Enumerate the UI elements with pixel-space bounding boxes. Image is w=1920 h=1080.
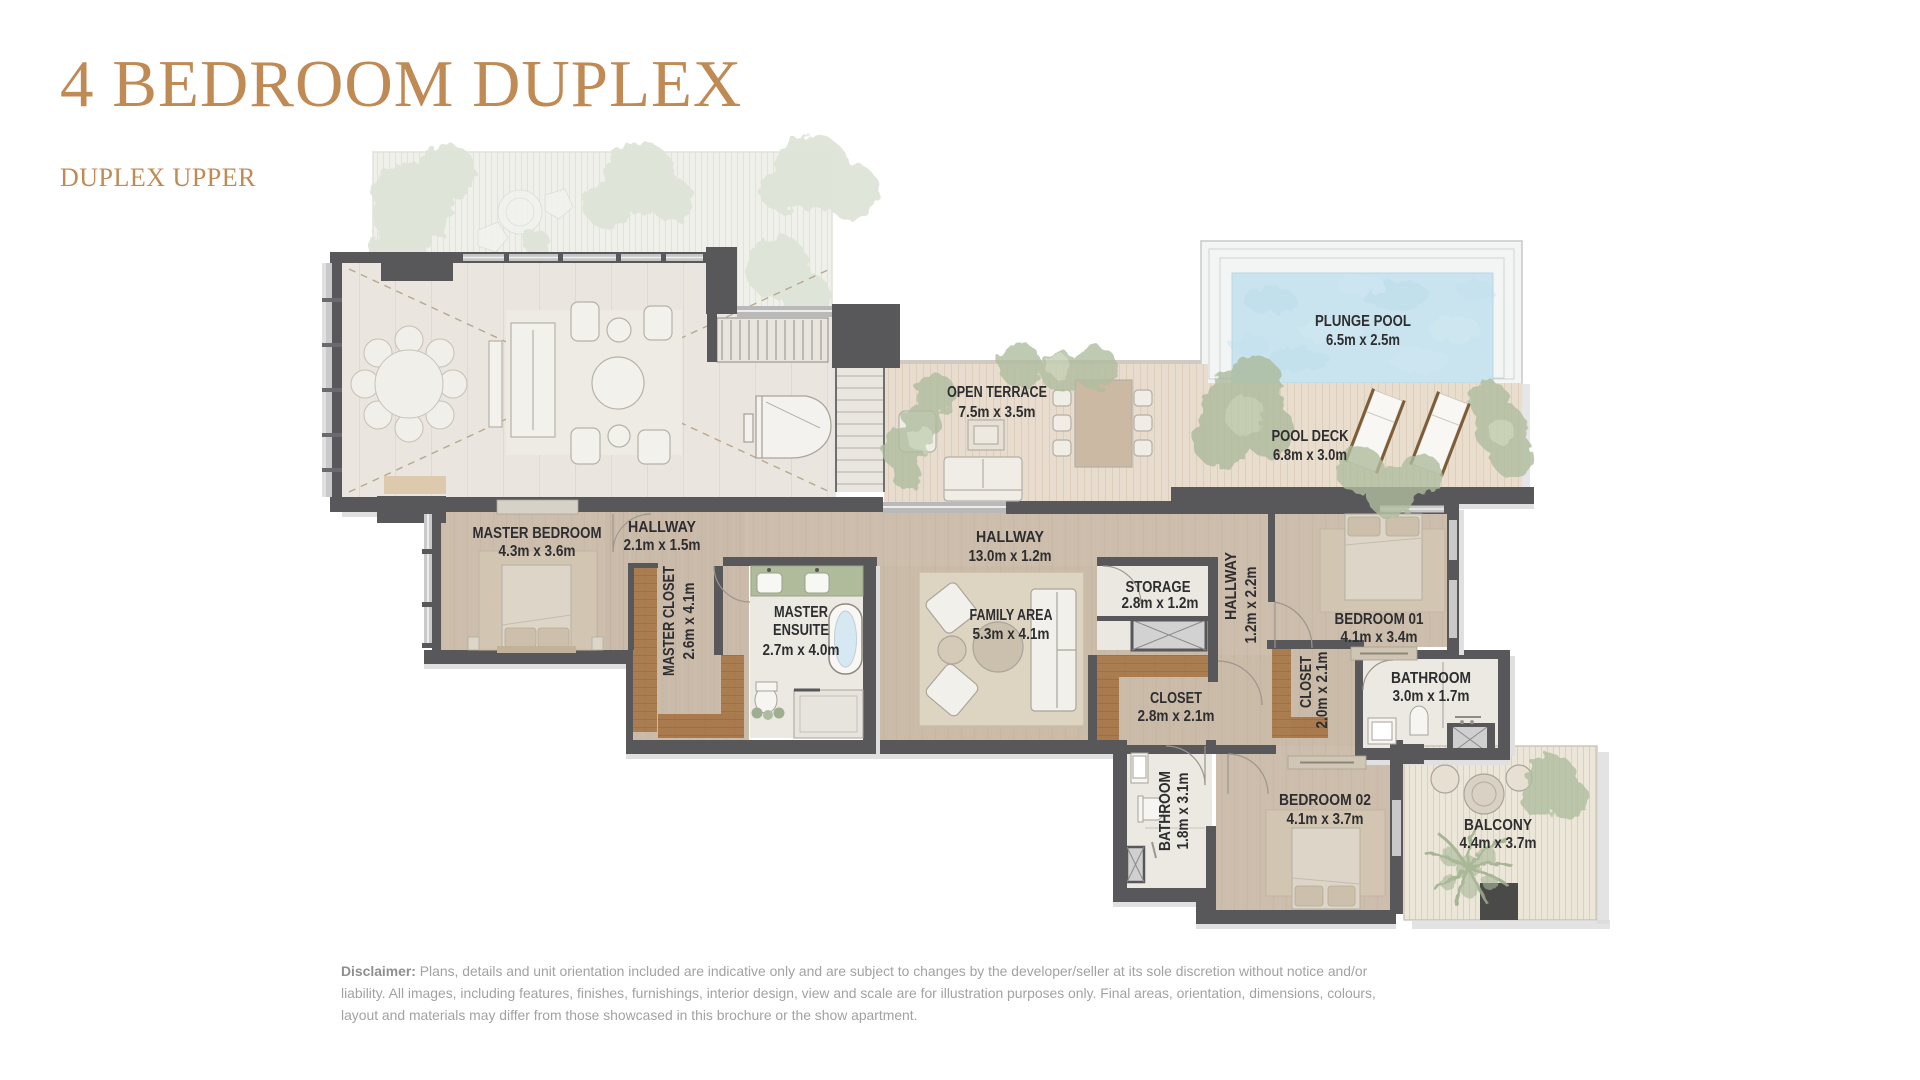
svg-text:STORAGE: STORAGE — [1126, 579, 1191, 596]
svg-text:6.8m x 3.0m: 6.8m x 3.0m — [1273, 447, 1347, 464]
svg-text:2.6m x 4.1m: 2.6m x 4.1m — [681, 583, 698, 660]
svg-text:MASTER CLOSET: MASTER CLOSET — [661, 566, 678, 676]
svg-text:2.0m x 2.1m: 2.0m x 2.1m — [1314, 652, 1331, 729]
svg-text:BATHROOM: BATHROOM — [1157, 771, 1174, 851]
svg-text:HALLWAY: HALLWAY — [1223, 551, 1240, 620]
svg-text:4.3m x 3.6m: 4.3m x 3.6m — [499, 543, 576, 560]
svg-text:2.1m x 1.5m: 2.1m x 1.5m — [624, 537, 701, 554]
svg-text:BATHROOM: BATHROOM — [1391, 670, 1471, 687]
svg-text:ENSUITE: ENSUITE — [773, 622, 829, 639]
svg-text:2.7m x 4.0m: 2.7m x 4.0m — [763, 642, 840, 659]
svg-text:CLOSET: CLOSET — [1150, 690, 1202, 707]
svg-text:PLUNGE POOL: PLUNGE POOL — [1315, 313, 1411, 330]
svg-text:CLOSET: CLOSET — [1298, 656, 1315, 708]
svg-text:6.5m x 2.5m: 6.5m x 2.5m — [1326, 332, 1400, 349]
svg-text:FAMILY AREA: FAMILY AREA — [970, 607, 1053, 624]
svg-text:OPEN TERRACE: OPEN TERRACE — [947, 384, 1047, 401]
svg-text:liability. All images, includi: liability. All images, including feature… — [341, 985, 1376, 1001]
svg-text:3.0m x 1.7m: 3.0m x 1.7m — [1393, 688, 1470, 705]
svg-text:MASTER BEDROOM: MASTER BEDROOM — [473, 525, 602, 542]
svg-text:Disclaimer: Plans, details an: Disclaimer: Plans, details and unit orie… — [341, 963, 1368, 979]
svg-text:DUPLEX UPPER: DUPLEX UPPER — [60, 163, 256, 192]
svg-text:7.5m x 3.5m: 7.5m x 3.5m — [959, 404, 1036, 421]
svg-text:1.8m x 3.1m: 1.8m x 3.1m — [1175, 773, 1192, 850]
svg-text:2.8m x 1.2m: 2.8m x 1.2m — [1122, 595, 1199, 612]
svg-text:5.3m x 4.1m: 5.3m x 4.1m — [973, 626, 1050, 643]
svg-text:BEDROOM 01: BEDROOM 01 — [1335, 611, 1424, 628]
svg-text:4.1m x 3.7m: 4.1m x 3.7m — [1287, 811, 1364, 828]
svg-text:BALCONY: BALCONY — [1464, 817, 1533, 834]
svg-text:layout and materials may diffe: layout and materials may differ from tho… — [341, 1007, 918, 1023]
svg-text:MASTER: MASTER — [774, 604, 828, 621]
svg-text:4.1m x 3.4m: 4.1m x 3.4m — [1341, 629, 1418, 646]
svg-text:13.0m x 1.2m: 13.0m x 1.2m — [969, 548, 1052, 565]
svg-text:HALLWAY: HALLWAY — [976, 529, 1045, 546]
svg-text:4.4m x 3.7m: 4.4m x 3.7m — [1460, 835, 1537, 852]
svg-text:POOL DECK: POOL DECK — [1272, 428, 1350, 445]
svg-text:1.2m x 2.2m: 1.2m x 2.2m — [1243, 567, 1260, 644]
svg-text:HALLWAY: HALLWAY — [628, 519, 697, 536]
svg-text:4 BEDROOM DUPLEX: 4 BEDROOM DUPLEX — [60, 47, 742, 121]
svg-text:2.8m x 2.1m: 2.8m x 2.1m — [1138, 708, 1215, 725]
svg-text:BEDROOM 02: BEDROOM 02 — [1279, 792, 1371, 809]
